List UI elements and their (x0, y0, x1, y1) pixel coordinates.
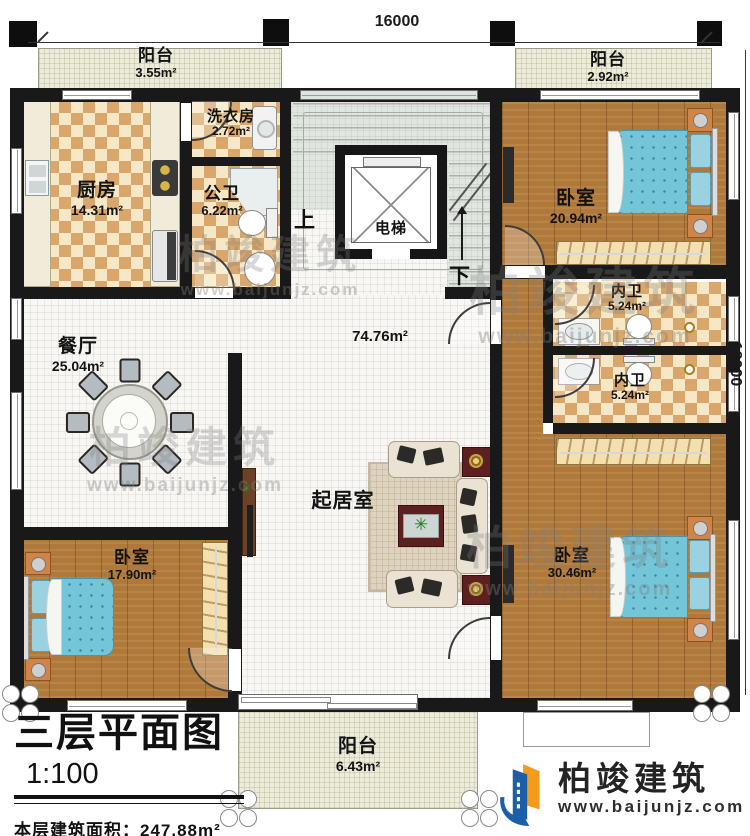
dining-chair (170, 412, 194, 433)
dining-window-2 (11, 392, 22, 490)
brand-logo: 柏竣建筑 www.baijunjz.com (492, 762, 745, 828)
bath1-toilet-tank (623, 338, 655, 345)
plan-scale: 1:100 (26, 758, 99, 790)
corridor-floor (502, 279, 543, 434)
pillar-cluster (692, 684, 730, 722)
balcony-sliding-door (238, 694, 418, 710)
kitchen-window (62, 90, 132, 100)
wall-dining-living (228, 353, 242, 530)
title-underline (14, 795, 244, 799)
sofa-cushion (461, 514, 478, 534)
bedroom-br-tv (503, 545, 514, 603)
wall-corridor-bath (543, 279, 553, 423)
side-table (462, 575, 492, 605)
living-area-label: 74.76m² (330, 328, 430, 345)
lazy-susan (120, 412, 138, 430)
bedroom-tr-wardrobe (556, 241, 711, 265)
nightstand (687, 214, 713, 238)
bedroom-tr-side-window (728, 112, 739, 200)
sofa-cushion (460, 544, 478, 562)
dining-set (70, 362, 186, 478)
toilet-tank (266, 208, 278, 238)
fridge-door (167, 232, 176, 280)
dimension-right: 18000 (726, 319, 744, 409)
stair-direction-arrow (457, 206, 467, 214)
nightstand (25, 658, 51, 681)
stairs-down-label: 下 (449, 260, 470, 290)
wall-bedroom-tr-left (490, 101, 502, 279)
kitchen-side-window (11, 148, 22, 214)
living-name-label: 起居室 (288, 490, 398, 513)
brand-logo-icon (492, 762, 550, 828)
dimension-top-line (28, 42, 720, 43)
wall-bath2-bottom (553, 423, 727, 434)
side-table-ornament (469, 454, 483, 468)
plant-small: ✳ (242, 482, 254, 494)
pillow (689, 577, 710, 610)
wall-bedroom-bl-top (10, 527, 242, 540)
bedroom-bl-label: 卧室 17.90m² (84, 548, 180, 582)
pillow (689, 540, 710, 573)
stair-window (300, 90, 478, 100)
balcony-bottom-label: 阳台 6.43m² (310, 736, 406, 774)
plan-title: 三层平面图 (14, 711, 224, 755)
ensuite-bath-2-label: 内卫 5.24m² (588, 372, 672, 403)
dining-chair (66, 412, 90, 433)
pedestal-sink (244, 252, 276, 286)
elevator-label: 电梯 (352, 220, 430, 237)
bed-headboard (712, 128, 718, 216)
public-bath-label: 公卫 6.22m² (178, 184, 266, 218)
bed-blanket (616, 536, 688, 618)
fridge (152, 230, 178, 282)
sliding-door-leaf (241, 697, 331, 703)
title-block: 三层平面图1:100 本层建筑面积：247.88m² 层高：3.2m (14, 700, 244, 836)
stair-arrow-stem (461, 214, 463, 260)
wall-laundry-bath (192, 157, 280, 166)
coffee-table: ✳ (398, 505, 444, 547)
stairs-up-label: 上 (294, 204, 315, 234)
nightstand (25, 552, 51, 575)
elevator-shaft (335, 145, 447, 259)
nightstand (687, 108, 713, 132)
bedroom-bl-wardrobe (202, 542, 228, 656)
dining-label: 餐厅 25.04m² (28, 336, 128, 374)
bedroom-tr-door-opening (505, 266, 545, 278)
bedroom-br-side-window (728, 520, 739, 640)
terrace-step (523, 712, 650, 747)
floor-area-line: 本层建筑面积：247.88m² (14, 816, 244, 836)
bedroom-tr-tv (503, 147, 514, 203)
dimension-tick-left (37, 31, 48, 42)
column (9, 21, 37, 47)
bed-sheet-fold (46, 579, 62, 655)
kitchen-label: 厨房 14.31m² (42, 180, 152, 218)
corridor-door-opening (491, 300, 501, 344)
living-tv (247, 505, 253, 557)
dining-chair (120, 462, 141, 486)
laundry-label: 洗衣房 2.72m² (185, 108, 277, 139)
kitchen-stove (152, 160, 178, 196)
bed-blanket (614, 130, 688, 214)
ensuite-bath-1-label: 内卫 5.24m² (585, 283, 669, 314)
elevator-counterweight (363, 157, 421, 167)
wall-bath-divider (553, 346, 727, 355)
sliding-door-leaf (327, 703, 417, 709)
bedroom-tr-label: 卧室 20.94m² (528, 188, 624, 226)
bath1-toilet (626, 314, 652, 339)
pillow (690, 172, 711, 206)
plant: ✳ (414, 515, 428, 535)
bedroom-br-label: 卧室 30.46m² (524, 546, 620, 580)
bath1-towel-ring (684, 322, 695, 333)
balcony-top-left-label: 阳台 3.55m² (108, 46, 204, 80)
bath2-towel-ring (684, 364, 695, 375)
brand-website: www.baijunjz.com (558, 797, 745, 817)
bedroom-br-window (537, 700, 633, 711)
side-table-ornament (469, 582, 483, 596)
bedroom-br-door-opening (491, 616, 501, 660)
wall-stair-left (280, 101, 291, 299)
dining-window-1 (11, 298, 22, 340)
dimension-top: 16000 (342, 13, 452, 31)
floor-plan-canvas: 16000 18000 电梯 上 下 (0, 0, 750, 836)
balcony-top-right-label: 阳台 2.92m² (560, 50, 656, 84)
brand-name: 柏竣建筑 (558, 762, 745, 797)
dimension-right-line (745, 50, 746, 695)
wall-kitchen-bottom (10, 287, 290, 299)
bed-headboard (710, 534, 716, 622)
title-underline-thin (14, 803, 244, 804)
bedroom-tr-balcony-window (540, 90, 700, 100)
side-table (462, 447, 492, 477)
pillow (690, 134, 711, 168)
elevator-door-gap (372, 247, 410, 259)
bedroom-br-wardrobe (556, 438, 711, 465)
